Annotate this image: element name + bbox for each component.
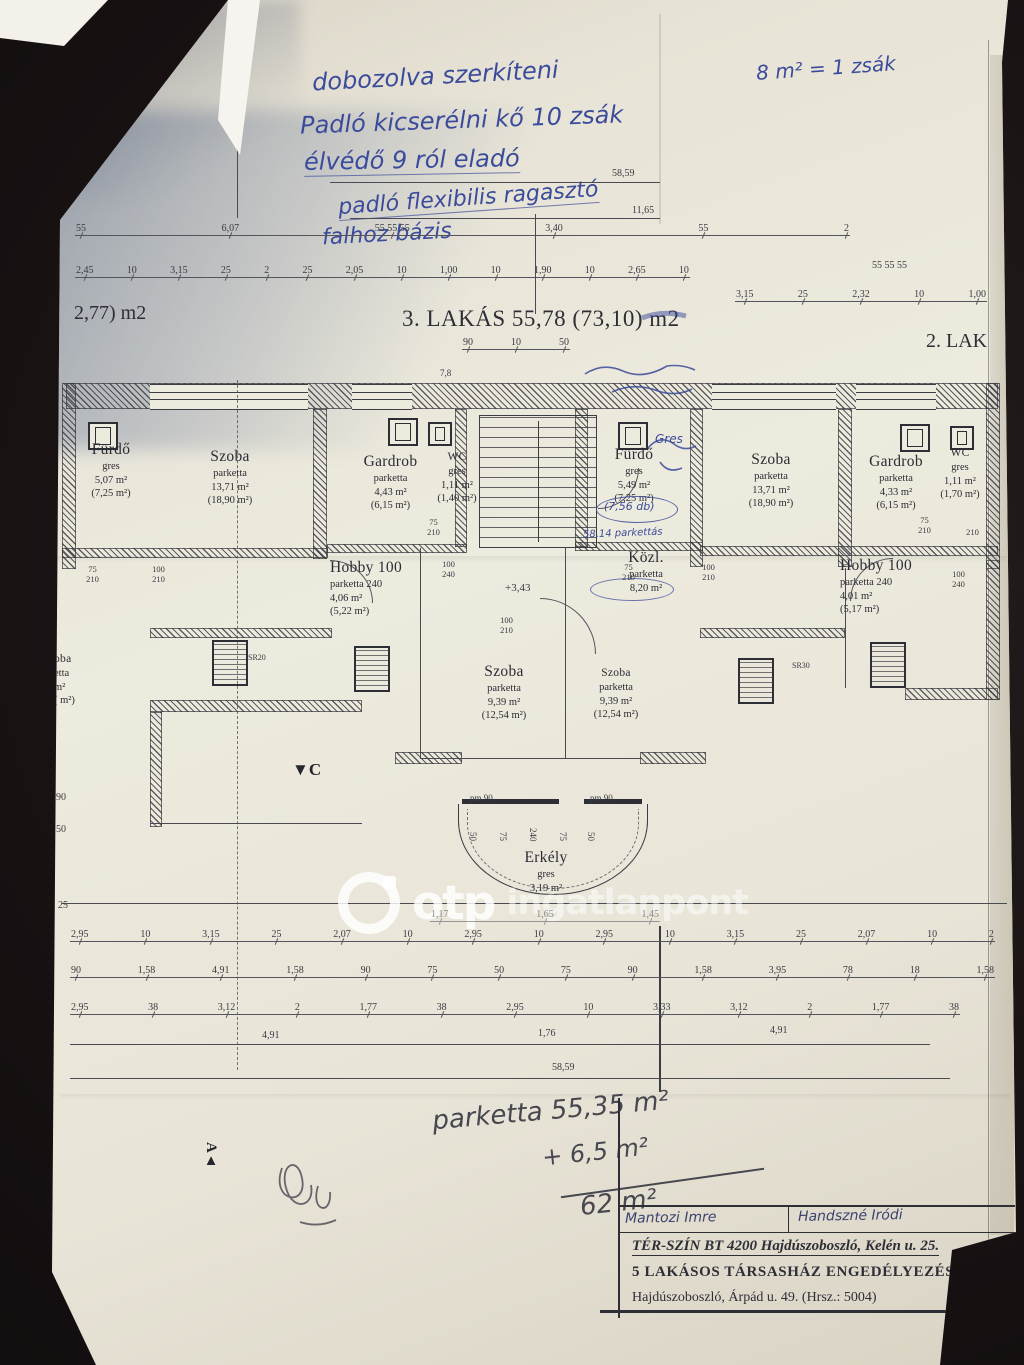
- dim-value: 3,15: [169, 266, 189, 276]
- dim-value: 3,15: [201, 930, 221, 940]
- room-label: 5,49 m²: [595, 479, 673, 493]
- door-size: 75 210: [916, 516, 933, 536]
- dimension-row-bottom-3: 2,95383,1221,77382,95103,333,1221,7738: [70, 1003, 960, 1017]
- dim-value: 50: [56, 824, 66, 835]
- dim-value: 1,58: [285, 966, 305, 976]
- dim-value: 1,58: [975, 966, 995, 976]
- dim-value: 75: [426, 966, 438, 976]
- dim-value: 10: [664, 930, 676, 940]
- dim-value: 4,91: [770, 1025, 788, 1036]
- apartment-title-left-partial: 2,77) m2: [74, 302, 146, 325]
- dim-value: 2,95: [70, 1003, 90, 1013]
- dim-value: 2,07: [332, 930, 352, 940]
- radiator-icon: [870, 642, 906, 688]
- room-label: parketta: [570, 681, 662, 695]
- dim-value: 75: [560, 966, 572, 976]
- title-block-border: [600, 1310, 1020, 1313]
- wall: [327, 544, 467, 553]
- dim-value: 3,12: [217, 1003, 237, 1013]
- room-label: parketta: [710, 470, 832, 484]
- dim-value: 3,95: [768, 966, 788, 976]
- room-label: Szoba: [448, 662, 560, 682]
- dim-total-top: 58,59: [612, 168, 635, 179]
- room-szoba-right: Szobaparketta13,71 m²(18,90 m²): [710, 450, 832, 511]
- dim-value: 1,58: [693, 966, 713, 976]
- radiator-icon: [738, 658, 774, 704]
- room-label: gres: [80, 460, 142, 474]
- dim-value: 10: [396, 266, 408, 276]
- dim-value: 78: [842, 966, 854, 976]
- dim-value: 2,95: [463, 930, 483, 940]
- dim-value: 240: [528, 828, 538, 842]
- room-wc-left: WCgres1,11 m²(1,40 m²): [428, 450, 486, 506]
- room-label: 5,07 m²: [80, 474, 142, 488]
- room-label: (18,90 m²): [710, 497, 832, 511]
- room-label: 4,01 m²: [840, 590, 952, 604]
- dim-value: 10: [582, 1003, 594, 1013]
- axis-marker-a-bottom: A▲: [202, 1142, 219, 1169]
- dim-value: 3,15: [735, 290, 755, 300]
- dim-value: 25: [795, 930, 807, 940]
- signature-1: Mantozi Imre: [625, 1209, 717, 1227]
- wall: [905, 688, 998, 700]
- paper-crease: [659, 14, 661, 224]
- room-label: 1,11 m²: [934, 475, 986, 489]
- handwritten-calc-2: + 6,5 m²: [541, 1133, 650, 1172]
- signature-2: Handszné Iródi: [798, 1207, 903, 1225]
- dim-value: 90: [627, 966, 639, 976]
- room-furdo-left: Fürdőgres5,07 m²(7,25 m²): [80, 440, 142, 501]
- dim-value: 1,65: [535, 910, 555, 920]
- dim-value: 2: [843, 224, 850, 234]
- dim-value: 3,12: [729, 1003, 749, 1013]
- dim-value: 1,00: [968, 290, 988, 300]
- room-label: Hobby 100: [330, 558, 442, 578]
- dim-value: 25: [220, 266, 232, 276]
- dim-value: 3,15: [726, 930, 746, 940]
- dim-value: 1,17: [430, 910, 450, 920]
- plan-outline: [150, 823, 362, 824]
- dimension-row-bottom-1: 2,95103,15252,07102,95102,95103,15252,07…: [70, 930, 995, 944]
- dim-value: 10: [510, 338, 522, 348]
- room-label: Hobby 100: [840, 556, 952, 576]
- room-partial-left: obaettam²( m²): [54, 652, 118, 708]
- dim-value: 55: [75, 224, 87, 234]
- door-size: 100 210: [700, 563, 717, 583]
- room-label: (1,40 m²): [428, 492, 486, 506]
- dim-value: 7,8: [440, 368, 451, 378]
- dim-value: 50: [493, 966, 505, 976]
- handwritten-parquet-note: 58,14 parkettás: [583, 527, 663, 541]
- dim-value: 1,45: [641, 910, 661, 920]
- wall: [150, 700, 362, 712]
- wall: [986, 560, 1000, 700]
- dim-value: 2: [988, 930, 995, 940]
- dim-value: 2: [806, 1003, 813, 1013]
- room-label: Gardrob: [846, 452, 946, 472]
- room-gardrob-right: Gardrobparketta4,33 m²(6,15 m²): [846, 452, 946, 513]
- washbasin-icon: [900, 424, 930, 452]
- room-label: Erkély: [498, 848, 594, 868]
- dim-value: 10: [139, 930, 151, 940]
- dimension-line: [70, 1044, 930, 1045]
- dim-value: 1,77: [871, 1003, 891, 1013]
- wall: [150, 628, 332, 638]
- room-hobby-right: Hobby 100parketta 2404,01 m²(5,17 m²): [840, 556, 952, 617]
- handwritten-note-1: dobozolva szerkíteni: [311, 56, 559, 97]
- dimension-row-balcony: 1,171,651,45: [430, 910, 660, 924]
- dimension-line: [350, 218, 660, 219]
- dim-value: 10: [490, 266, 502, 276]
- dim-value: 6,07: [221, 224, 241, 234]
- dim-value: 1,00: [439, 266, 459, 276]
- room-label: gres: [934, 461, 986, 475]
- level-mark: +3,43: [505, 582, 530, 594]
- room-szoba-center-2: Szobaparketta9,39 m²(12,54 m²): [570, 666, 662, 722]
- washbasin-icon: [388, 418, 418, 446]
- dim-value: 25: [301, 266, 313, 276]
- handwritten-note-bag: 8 m² = 1 zsák: [755, 51, 896, 85]
- dim-value: 90: [462, 338, 474, 348]
- room-label: Fürdő: [80, 440, 142, 460]
- room-label: parketta 240: [840, 576, 952, 590]
- dim-value: 50: [586, 832, 596, 841]
- title-block-firm: TÉR-SZÍN BT 4200 Hajdúszoboszló, Kelén u…: [632, 1238, 939, 1256]
- apartment-title-right-partial: 2. LAK: [926, 330, 1006, 353]
- handwritten-area-note: (7,56 db): [604, 500, 655, 513]
- dim-value: 1,76: [538, 1028, 556, 1039]
- otp-watermark: otp ingatlanpont: [338, 872, 748, 934]
- dim-value: 25: [58, 900, 68, 911]
- dim-value: 55: [697, 224, 709, 234]
- wall: [62, 548, 328, 558]
- room-label: 13,71 m²: [710, 484, 832, 498]
- dim-value: 50: [558, 338, 570, 348]
- wall: [313, 409, 327, 559]
- room-label: ( m²): [54, 694, 118, 708]
- room-label: (6,15 m²): [846, 499, 946, 513]
- room-szoba-center: Szobaparketta9,39 m²(12,54 m²): [448, 662, 560, 723]
- room-label: (5,17 m²): [840, 603, 952, 617]
- radiator-icon: [354, 646, 390, 692]
- title-block-address: Hajdúszoboszló, Árpád u. 49. (Hrsz.: 500…: [632, 1290, 877, 1306]
- dim-value: 11,65: [632, 205, 654, 216]
- wall: [62, 383, 76, 569]
- dim-value: 2,65: [627, 266, 647, 276]
- room-label: etta: [54, 667, 118, 681]
- room-label: Szoba: [570, 666, 662, 681]
- dim-value: 2,07: [857, 930, 877, 940]
- door-size: 100 240: [950, 570, 967, 590]
- room-label: 13,71 m²: [165, 481, 295, 495]
- dim-value: 75: [498, 832, 508, 841]
- room-label: Szoba: [710, 450, 832, 470]
- room-label: parketta: [448, 682, 560, 696]
- door-size: 100 210: [150, 565, 167, 585]
- dim-value: 10: [533, 930, 545, 940]
- dim-value: 2,45: [75, 266, 95, 276]
- room-label: 9,39 m²: [448, 696, 560, 710]
- dim-value: 10: [402, 930, 414, 940]
- handwritten-circle: [590, 578, 674, 601]
- room-label: 4,06 m²: [330, 592, 442, 606]
- door-size: 75 210: [425, 518, 442, 538]
- paper-scrap-corner: [0, 0, 110, 48]
- dim-value: 1,58: [137, 966, 157, 976]
- dimension-line: [330, 182, 660, 183]
- dim-value: 75: [558, 832, 568, 841]
- dim-value: 38: [147, 1003, 159, 1013]
- room-szoba-left: Szobaparketta13,71 m²(18,90 m²): [165, 447, 295, 508]
- dimension-row-top-2: 2,45103,15252252,05101,00101,90102,6510: [75, 266, 690, 280]
- dim-value: 4,91: [262, 1030, 280, 1041]
- room-label: Fürdő: [595, 445, 673, 465]
- dim-value: 4,91: [211, 966, 231, 976]
- dim-value: 10: [584, 266, 596, 276]
- room-label: (12,54 m²): [448, 709, 560, 723]
- section-marker-c: ▼C: [292, 760, 321, 780]
- dimension-row-top-right: 3,15252,32101,00: [735, 290, 987, 304]
- plan-outline: [420, 758, 642, 759]
- title-block-border: [618, 1205, 1015, 1207]
- window: [856, 384, 936, 410]
- room-label: WC: [428, 450, 486, 465]
- room-label: parketta: [165, 467, 295, 481]
- radiator-label: SR20: [248, 653, 266, 662]
- wall: [640, 752, 706, 764]
- dim-value: 10: [913, 290, 925, 300]
- parapet-label: pm 90: [590, 793, 613, 803]
- dim-value: 2: [294, 1003, 301, 1013]
- room-label: Szoba: [165, 447, 295, 467]
- dim-value: 2,95: [595, 930, 615, 940]
- dim-value: 38: [948, 1003, 960, 1013]
- dim-value: 10: [926, 930, 938, 940]
- title-block-project: 5 LAKÁSOS TÁRSASHÁZ ENGEDÉLYEZÉSI: [632, 1264, 961, 1281]
- door-swing: [540, 598, 596, 654]
- radiator-label: SR30: [792, 661, 810, 670]
- room-label: parketta: [846, 472, 946, 486]
- photo-background: 8 m² = 1 zsák dobozolva szerkíteni Padló…: [0, 0, 1024, 1365]
- dimension-line: [70, 1078, 950, 1079]
- window: [150, 384, 308, 410]
- parapet-label: pm 90: [470, 793, 493, 803]
- dim-value: 90: [70, 966, 82, 976]
- dim-value: 2,95: [70, 930, 90, 940]
- room-label: oba: [54, 652, 118, 667]
- radiator-icon: [212, 640, 248, 686]
- dim-value: 25: [270, 930, 282, 940]
- dim-value: 2,32: [851, 290, 871, 300]
- dim-value: 25: [797, 290, 809, 300]
- title-block-border: [618, 1098, 620, 1318]
- window: [352, 384, 412, 410]
- title-block-border: [788, 1205, 789, 1232]
- wall: [700, 546, 998, 556]
- room-label: 1,11 m²: [428, 479, 486, 493]
- apartment-title: 3. LAKÁS 55,78 (73,10) m2: [402, 306, 680, 332]
- dim-value: 90: [360, 966, 372, 976]
- construction-line: [535, 214, 536, 314]
- room-label: (5,22 m²): [330, 605, 442, 619]
- room-label: gres: [595, 465, 673, 479]
- dim-value: 1,77: [359, 1003, 379, 1013]
- dimension-row-bottom-2: 901,584,911,5890755075901,583,9578181,58: [70, 966, 995, 980]
- room-label: (1,70 m²): [934, 488, 986, 502]
- room-label: WC: [934, 446, 986, 461]
- wall: [150, 712, 162, 827]
- dim-value: 50: [468, 832, 478, 841]
- dim-value: 38: [436, 1003, 448, 1013]
- dim-value: 3,33: [652, 1003, 672, 1013]
- room-label: (12,54 m²): [570, 708, 662, 722]
- room-label: (7,25 m²): [80, 487, 142, 501]
- dim-value: 2,05: [345, 266, 365, 276]
- dimension-row-under-title: 901050: [462, 338, 570, 352]
- dim-value: 3,40: [544, 224, 564, 234]
- door-size: 100 210: [498, 616, 515, 636]
- handwritten-gres-note: Gres: [655, 432, 683, 446]
- dim-value: 10: [126, 266, 138, 276]
- door-size: 210: [964, 528, 981, 538]
- title-block-border: [618, 1232, 1015, 1233]
- dim-value: 2,95: [505, 1003, 525, 1013]
- room-label: parketta 240: [330, 578, 442, 592]
- dim-total-bottom: 58,59: [552, 1062, 575, 1073]
- wall: [700, 628, 845, 638]
- door-size: 100 240: [440, 560, 457, 580]
- handwritten-note-3: élvédő 9 ról eladó: [304, 144, 520, 177]
- dim-value: 2: [263, 266, 270, 276]
- room-label: m²: [54, 681, 118, 695]
- dimension-row-top-1: 556,0755 55 553,40552: [75, 224, 850, 238]
- door-size: 75 210: [84, 565, 101, 585]
- floorplan-paper: 8 m² = 1 zsák dobozolva szerkíteni Padló…: [0, 0, 1024, 1365]
- window: [712, 384, 836, 410]
- toilet-icon: [428, 422, 452, 446]
- dim-value: 55 55 55: [872, 260, 907, 271]
- dim-value: 10: [678, 266, 690, 276]
- dim-value: 55 55 55: [374, 224, 411, 234]
- dim-value: 18: [909, 966, 921, 976]
- room-label: Közl.: [598, 548, 694, 568]
- room-hobby-left: Hobby 100parketta 2404,06 m²(5,22 m²): [330, 558, 442, 619]
- dim-value: 90: [56, 792, 66, 803]
- room-label: 9,39 m²: [570, 695, 662, 709]
- room-label: 4,33 m²: [846, 486, 946, 500]
- wall: [986, 383, 1000, 569]
- room-wc-right: WCgres1,11 m²(1,70 m²): [934, 446, 986, 502]
- staircase: [479, 415, 597, 548]
- otp-logo-icon: [338, 872, 400, 934]
- room-label: (18,90 m²): [165, 494, 295, 508]
- room-label: gres: [428, 465, 486, 479]
